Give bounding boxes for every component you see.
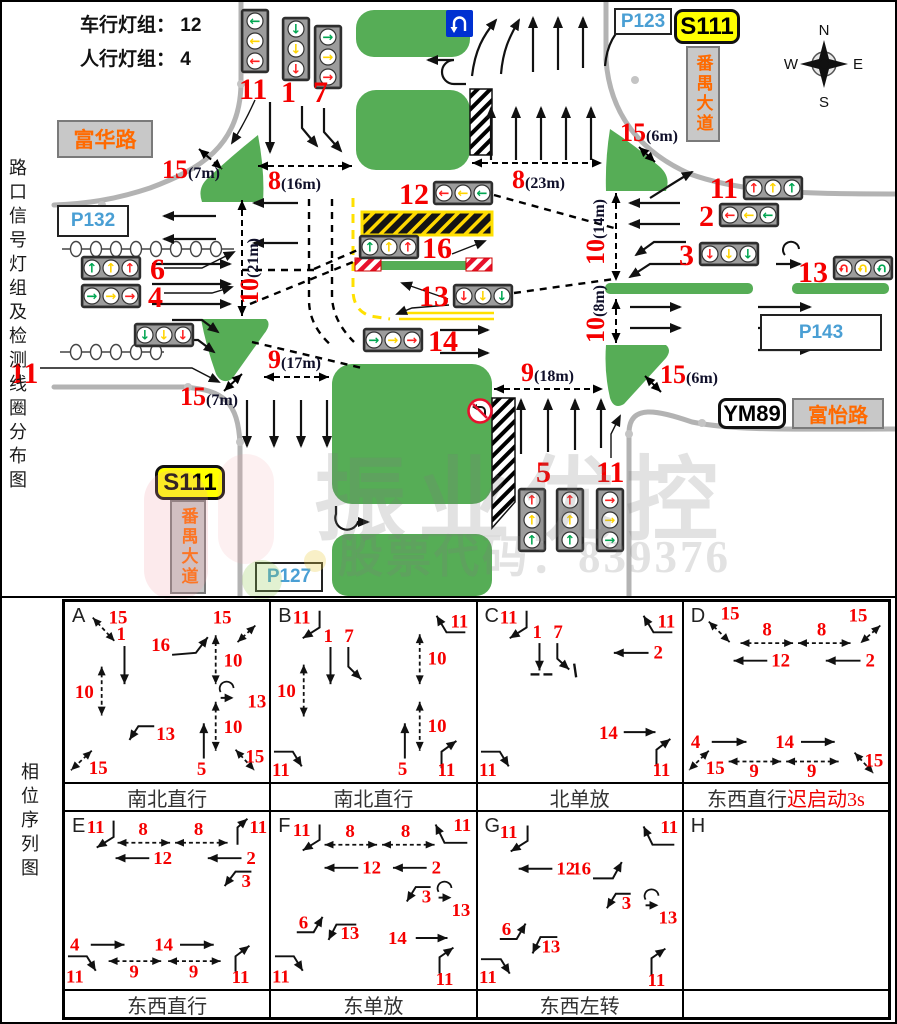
phase-letter: D [691,605,705,628]
signal-head-1-north: ↓↓↓ [283,18,309,80]
compass-e-label: E [853,56,863,73]
signal-head-13-east [834,257,892,279]
phase-item-14: 14 [598,723,655,744]
svg-text:10(21m): 10(21m) [235,238,264,304]
svg-text:13: 13 [247,692,266,713]
u-turn-permitted-sign-icon [446,10,473,37]
left-arrow-icon: ← [439,187,450,202]
svg-text:13: 13 [541,937,560,958]
down-arrow-icon: ↓ [291,23,302,38]
svg-text:11: 11 [478,760,496,781]
phase-item-8: 8 [325,821,378,848]
signal-number-label: 16 [422,232,452,265]
phase-item-8: 8 [175,819,228,846]
phase-item-11: 11 [87,817,114,847]
signal-head-12: ←←← [434,182,492,204]
up-arrow-icon: ↑ [565,494,576,509]
u-turn-hook-east [783,242,799,255]
parking-p127: P127 [255,562,323,592]
up-arrow-icon: ↑ [384,241,395,256]
phase-item-5: 5 [197,723,208,780]
signal-head-2: ←←← [720,204,778,226]
phase-cell-e: E1188111223414119911 [64,811,270,990]
measurement-9(18m): 9(18m) [494,358,603,394]
section-divider [2,596,897,598]
down-arrow-icon: ↓ [705,248,716,263]
signal-number-label: 13 [419,280,449,313]
phase-item-11: 11 [643,612,675,633]
signal-number-label: 5 [536,456,551,489]
svg-text:10: 10 [75,682,94,703]
svg-text:9(18m): 9(18m) [521,358,574,387]
phase-item-8: 8 [798,619,851,647]
svg-text:11: 11 [272,760,290,781]
phase-cell-c: C1117112141111 [477,601,683,783]
map-section-title: 路口信号灯组及检测线圈分布图 [8,158,26,494]
left-arrow-icon: ← [744,209,755,224]
vehicle-light-count-value: 12 [180,15,201,36]
phase-item-11: 11 [436,815,472,842]
svg-text:2: 2 [246,848,255,869]
phase-item-9: 9 [109,957,162,982]
phase-diagram-h [684,812,888,989]
svg-text:11: 11 [451,612,469,633]
up-arrow-icon: ↑ [749,182,760,197]
phase-diagram-f: 118811122313613141111 [271,812,475,989]
phase-item-15: 15 [709,604,740,642]
phase-item-12: 12 [733,651,790,672]
left-arrow-icon: ← [250,35,261,50]
phase-item-11: 11 [66,956,96,987]
compass-s-label: S [819,94,829,111]
svg-text:14: 14 [598,723,617,744]
phase-item-10: 10 [416,702,447,751]
svg-text:4: 4 [70,935,79,956]
svg-text:5: 5 [398,759,407,780]
compass-n-label: N [819,22,830,39]
svg-text:15: 15 [89,758,108,779]
svg-text:8: 8 [817,619,826,640]
svg-text:11: 11 [293,608,311,629]
svg-text:13: 13 [156,724,175,745]
measurement-10(21m): 10(21m) [235,200,264,316]
up-arrow-icon: ↑ [565,514,576,529]
curb-stripe-right [466,258,492,271]
svg-text:15: 15 [706,758,725,779]
phase-diagram-e: 1188111223414119911 [65,812,269,989]
compass-icon: N S W E [784,22,863,111]
u-turn-lane-arrow-north [428,60,466,84]
signal-head-5-a: ↑↑↑ [519,489,545,551]
phase-item-13: 13 [329,923,360,944]
svg-text:9: 9 [749,761,758,782]
phase-item-9: 9 [786,758,839,782]
right-arrow-icon: → [605,494,616,509]
svg-text:14: 14 [775,732,794,753]
phase-item-9: 9 [728,758,781,782]
up-arrow-icon: ↑ [527,494,538,509]
svg-text:11: 11 [478,967,496,988]
down-arrow-icon: ↓ [178,329,189,344]
up-arrow-icon: ↑ [403,241,414,256]
phase-item-4: 4 [70,935,125,956]
down-arrow-icon: ↓ [291,43,302,58]
svg-text:15: 15 [245,747,264,768]
phase-item-11: 11 [478,752,508,781]
signal-number-label: 12 [399,178,429,211]
phase-caption-c: 北单放 [477,783,683,811]
caption-text: 东西直行 [707,783,787,812]
svg-text:11: 11 [249,817,267,838]
right-arrow-icon: → [407,334,418,349]
phase-diagram-d: 158815122414159915 [684,602,888,782]
phase-item-8: 8 [118,819,171,846]
phase-item-5: 5 [398,723,409,780]
signal-number-label: 7 [313,76,328,109]
phase-cell-f: F118811122313613141111 [270,811,476,990]
right-arrow-icon: → [605,514,616,529]
svg-text:2: 2 [865,651,874,672]
phase-item-8: 8 [740,619,793,647]
svg-text:3: 3 [621,893,630,914]
phase-letter: C [485,605,499,628]
svg-text:8: 8 [194,819,203,840]
signal-head-6: ↑↑↑ [82,257,140,279]
phase-item-11: 11 [643,817,678,844]
phase-cell-g: G111112163136131111 [477,811,683,990]
phase-caption-e: 东西直行 [64,990,270,1018]
parking-p143: P143 [760,314,882,351]
phase-item-8: 8 [382,821,435,848]
svg-text:3: 3 [241,871,250,892]
phase-item-7: 7 [345,626,362,679]
svg-text:11: 11 [66,967,84,988]
phase-item-11: 11 [293,820,320,850]
svg-text:4: 4 [691,732,700,753]
svg-text:9: 9 [129,962,138,983]
svg-text:15: 15 [213,608,232,629]
svg-text:14: 14 [388,928,407,949]
signal-head-5-b: ↑↑↑ [557,489,583,551]
phase-letter: H [691,815,705,838]
svg-text:2: 2 [653,643,662,664]
phase-item-11: 11 [436,948,454,989]
phase-item-15: 15 [236,747,265,771]
up-arrow-icon: ↑ [87,262,98,277]
up-arrow-icon: ↑ [125,262,136,277]
svg-text:16: 16 [151,635,170,656]
phase-item-3: 3 [606,893,630,914]
svg-text:10(14m): 10(14m) [581,199,610,265]
svg-text:11: 11 [647,970,665,989]
phase-cell-d: D158815122414159915 [683,601,889,783]
phase-item-13: 13 [220,682,267,713]
down-arrow-icon: ↓ [497,290,508,305]
phase-item-11: 11 [232,946,250,988]
left-arrow-icon: ← [725,209,736,224]
phase-caption-g: 东西左转 [477,990,683,1018]
svg-text:10: 10 [277,681,296,702]
phase-item-11: 11 [293,608,320,639]
up-arrow-icon: ↑ [787,182,798,197]
caption-red-text: 迟启动3s [787,783,865,812]
phase-item-2: 2 [208,848,256,869]
phase-item-13: 13 [438,882,471,921]
phase-item-15: 15 [854,750,883,773]
phase-item-14: 14 [388,928,447,949]
phase-item-6: 6 [499,919,525,940]
phase-item-11: 11 [499,822,527,851]
svg-text:11: 11 [660,817,678,838]
svg-text:11: 11 [657,612,675,633]
signal-number-label: 1 [281,76,296,109]
phase-letter: G [485,815,501,838]
svg-text:1: 1 [532,622,541,643]
route-sign-s111-north: S111 [674,9,740,44]
phase-cell-b: B11171011101051111 [270,601,476,783]
svg-text:11: 11 [454,815,472,836]
left-arrow-icon: ← [477,187,488,202]
svg-text:14: 14 [154,935,173,956]
road-name-panyu-north: 番禺大道 [686,46,720,142]
svg-text:11: 11 [87,817,105,838]
svg-text:11: 11 [293,820,311,841]
svg-text:8(23m): 8(23m) [512,165,565,194]
signal-head-11-east: ↑↑↑ [744,177,802,199]
phase-item-11: 11 [437,612,469,633]
svg-text:11: 11 [499,822,517,843]
compass-w-label: W [784,56,799,73]
phase-item-11: 11 [237,817,267,844]
measurement-15(7m): 15(7m) [180,374,242,411]
phase-item-15: 15 [689,751,725,779]
road-name-panyu-south: 番禺大道 [170,500,206,594]
phase-letter: F [278,815,290,838]
ped-light-count-label: 人行灯组： [80,49,175,70]
signal-head-4: →→→ [82,285,140,307]
route-sign-s111-south: S111 [155,465,225,500]
svg-text:15: 15 [864,750,883,771]
phase-item-4: 4 [691,732,747,753]
phase-item-11: 11 [438,741,457,781]
phase-item-2: 2 [393,858,441,879]
phase-cell-h: H [683,811,889,990]
svg-text:11: 11 [436,969,454,989]
signal-number-label: 11 [239,73,267,106]
phase-diagram-a: 1511016151013101351515 [65,602,269,782]
signal-number-label: 14 [428,325,458,358]
vehicle-light-count: 车行灯组： 12 [80,10,201,37]
phase-item-2: 2 [826,651,875,672]
phase-diagram-c: 1117112141111 [478,602,682,782]
measurement-8(16m): 8(16m) [258,162,352,196]
svg-text:16: 16 [572,859,591,880]
signal-head-11-west: ↓↓↓ [135,324,193,346]
phase-item-1: 1 [532,622,543,670]
svg-text:9: 9 [189,962,198,983]
svg-text:10: 10 [428,649,447,670]
phase-item-6: 6 [297,913,323,934]
phase-item-10: 10 [212,635,243,684]
road-name-fuhua: 富华路 [57,120,153,158]
phase-item-12: 12 [518,859,575,880]
phase-item-10: 10 [277,665,308,717]
phase-item-7: 7 [553,622,569,669]
right-arrow-icon: → [106,290,117,305]
svg-text:11: 11 [499,608,517,629]
phase-item-10: 10 [75,667,106,716]
svg-text:13: 13 [452,900,471,921]
signal-head-11-north: ←←← [242,10,268,72]
parking-p123: P123 [614,8,672,35]
svg-text:11: 11 [232,967,250,988]
phase-item-3: 3 [407,887,431,908]
road-name-fuyi: 富怡路 [792,398,884,429]
phase-caption-f: 东单放 [270,990,476,1018]
svg-text:6: 6 [501,919,510,940]
intersection-map: N S W E 15(7m)8(16m)10(21m)8(23m)10(14m)… [2,2,897,598]
phase-item-1: 1 [324,626,335,684]
phase-item-12: 12 [116,848,173,869]
phase-item-13: 13 [129,724,175,745]
phase-diagram-g: 111112163136131111 [478,812,682,989]
phase-item-11: 11 [272,752,302,781]
phase-letter: B [278,605,291,628]
left-arrow-icon: ← [250,55,261,70]
phase-item-16: 16 [572,859,622,880]
up-arrow-icon: ↑ [565,534,576,549]
svg-text:9(17m): 9(17m) [268,345,321,374]
svg-text:11: 11 [438,760,456,781]
svg-text:12: 12 [362,858,381,879]
svg-text:11: 11 [272,967,290,988]
phase-item-11: 11 [652,739,670,781]
svg-text:11: 11 [652,760,670,781]
caption-text: 南北直行 [333,783,413,812]
phase-item-11: 11 [478,959,509,988]
up-arrow-icon: ↑ [106,262,117,277]
svg-text:7: 7 [345,626,354,647]
signal-number-label: 13 [798,256,828,289]
svg-text:10: 10 [224,651,243,672]
svg-text:10(8m): 10(8m) [581,285,610,343]
svg-text:15: 15 [720,604,739,625]
phase-item-15: 15 [848,606,880,643]
phase-letter: E [72,815,85,838]
crosswalk-hatch-south [492,398,515,528]
svg-text:8: 8 [401,821,410,842]
svg-text:10: 10 [428,716,447,737]
right-arrow-icon: → [323,51,334,66]
phase-caption-b: 南北直行 [270,783,476,811]
signal-head-14: →→→ [364,329,422,351]
svg-text:8(16m): 8(16m) [268,166,321,195]
phase-caption-a: 南北直行 [64,783,270,811]
phase-cell-a: A1511016151013101351515 [64,601,270,783]
right-arrow-icon: → [125,290,136,305]
signal-number-label: 4 [148,281,163,314]
ped-light-count: 人行灯组： 4 [80,44,191,71]
up-arrow-icon: ↑ [365,241,376,256]
left-arrow-icon: ← [250,15,261,30]
svg-text:1: 1 [324,626,333,647]
phase-item-3: 3 [225,871,252,892]
phase-item-11: 11 [647,949,665,989]
svg-text:7: 7 [553,622,562,643]
svg-text:5: 5 [197,759,206,780]
phase-caption-d: 东西直行迟启动3s [683,783,889,811]
svg-text:9: 9 [807,761,816,782]
no-left-turn-sign-icon [469,400,492,423]
phase-item-11: 11 [272,956,303,987]
phase-letter: A [72,605,85,628]
svg-text:8: 8 [762,619,771,640]
svg-text:12: 12 [771,651,790,672]
phase-item-15: 15 [213,608,256,642]
curb-stripe-left [355,258,381,271]
svg-text:15(6m): 15(6m) [660,360,718,389]
down-arrow-icon: ↓ [459,290,470,305]
phase-item-11: 11 [499,608,526,639]
svg-text:8: 8 [138,819,147,840]
phase-item-1: 1 [117,624,129,684]
phase-item-2: 2 [613,643,662,664]
svg-text:8: 8 [346,821,355,842]
svg-text:10: 10 [224,717,243,738]
route-sign-ym89: YM89 [718,398,786,429]
signal-head-16: ↑↑↑ [360,236,418,258]
signal-number-label: 3 [679,239,694,272]
signal-head-3: ↓↓↓ [700,243,758,265]
up-arrow-icon: ↑ [527,514,538,529]
down-arrow-icon: ↓ [140,329,151,344]
signal-head-13-center: ↓↓↓ [454,285,512,307]
signal-number-label: 2 [699,200,714,233]
caption-text: 东单放 [343,990,403,1019]
svg-text:13: 13 [658,908,677,929]
svg-text:15(6m): 15(6m) [620,118,678,147]
signal-number-label: 11 [596,456,624,489]
right-arrow-icon: → [605,534,616,549]
up-arrow-icon: ↑ [527,534,538,549]
phase-item-13: 13 [532,937,560,958]
phase-item-9: 9 [168,957,221,982]
ped-light-count-value: 4 [180,49,191,70]
right-arrow-icon: → [323,31,334,46]
phase-sequence-grid: A1511016151013101351515 B111710111010511… [62,599,891,1020]
phase-item-13: 13 [644,889,677,928]
svg-text:13: 13 [341,923,360,944]
right-arrow-icon: → [388,334,399,349]
svg-text:15: 15 [848,606,867,627]
phase-item-14: 14 [775,732,834,753]
phase-item-16: 16 [151,635,208,656]
caption-text: 东西左转 [540,990,620,1019]
crosswalk-hatch-north [470,89,492,155]
phase-diagram-b: 11171011101051111 [271,602,475,782]
svg-text:12: 12 [153,848,172,869]
caption-text: 北单放 [550,783,610,812]
phase-item-10: 10 [416,634,447,684]
caption-text: 东西直行 [127,990,207,1019]
svg-text:1: 1 [117,624,126,645]
phase-item-14: 14 [154,935,213,956]
measurement-9(17m): 9(17m) [264,345,329,382]
down-arrow-icon: ↓ [159,329,170,344]
svg-text:3: 3 [422,887,431,908]
down-arrow-icon: ↓ [743,248,754,263]
phase-caption-h [683,990,889,1018]
